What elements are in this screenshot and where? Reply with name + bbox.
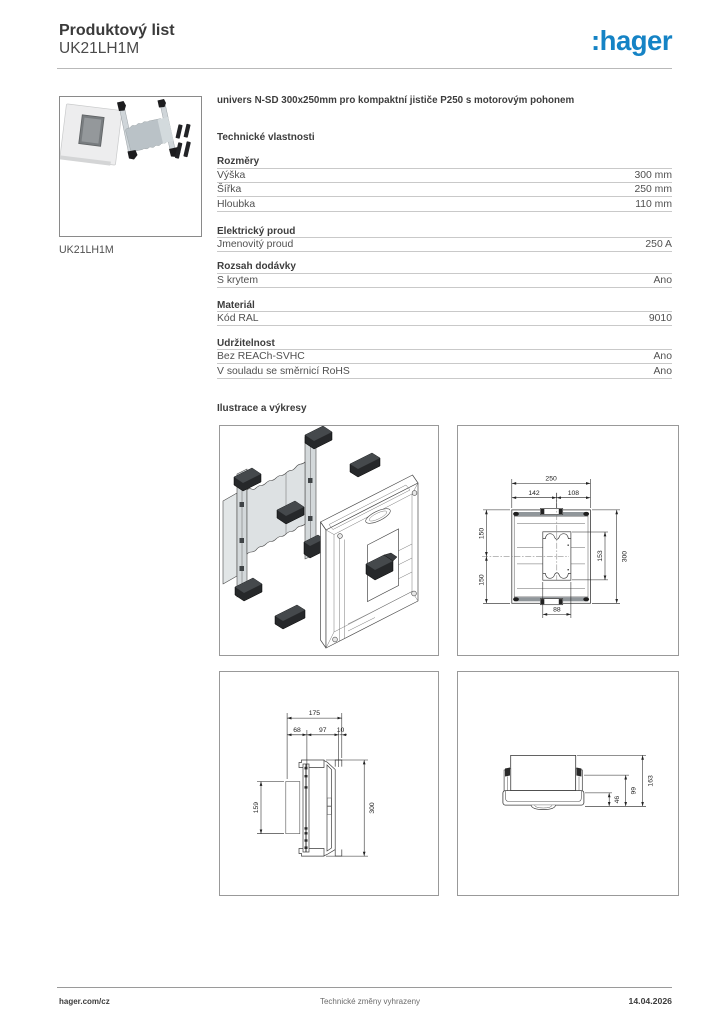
svg-text:300: 300 — [369, 802, 376, 814]
svg-text:97: 97 — [319, 727, 327, 734]
svg-text:108: 108 — [568, 490, 580, 497]
svg-text:142: 142 — [528, 490, 540, 497]
svg-text:153: 153 — [597, 550, 604, 562]
svg-text:10: 10 — [337, 727, 345, 734]
svg-text:150: 150 — [479, 574, 486, 586]
svg-text:46: 46 — [614, 796, 621, 804]
svg-text:163: 163 — [647, 775, 654, 787]
svg-text:99: 99 — [631, 787, 638, 795]
svg-text:250: 250 — [545, 476, 557, 483]
svg-text:88: 88 — [553, 606, 561, 613]
svg-text:175: 175 — [309, 710, 321, 717]
svg-text:159: 159 — [253, 802, 260, 814]
svg-text:150: 150 — [479, 528, 486, 540]
svg-text:300: 300 — [622, 551, 629, 563]
svg-text:68: 68 — [293, 727, 301, 734]
